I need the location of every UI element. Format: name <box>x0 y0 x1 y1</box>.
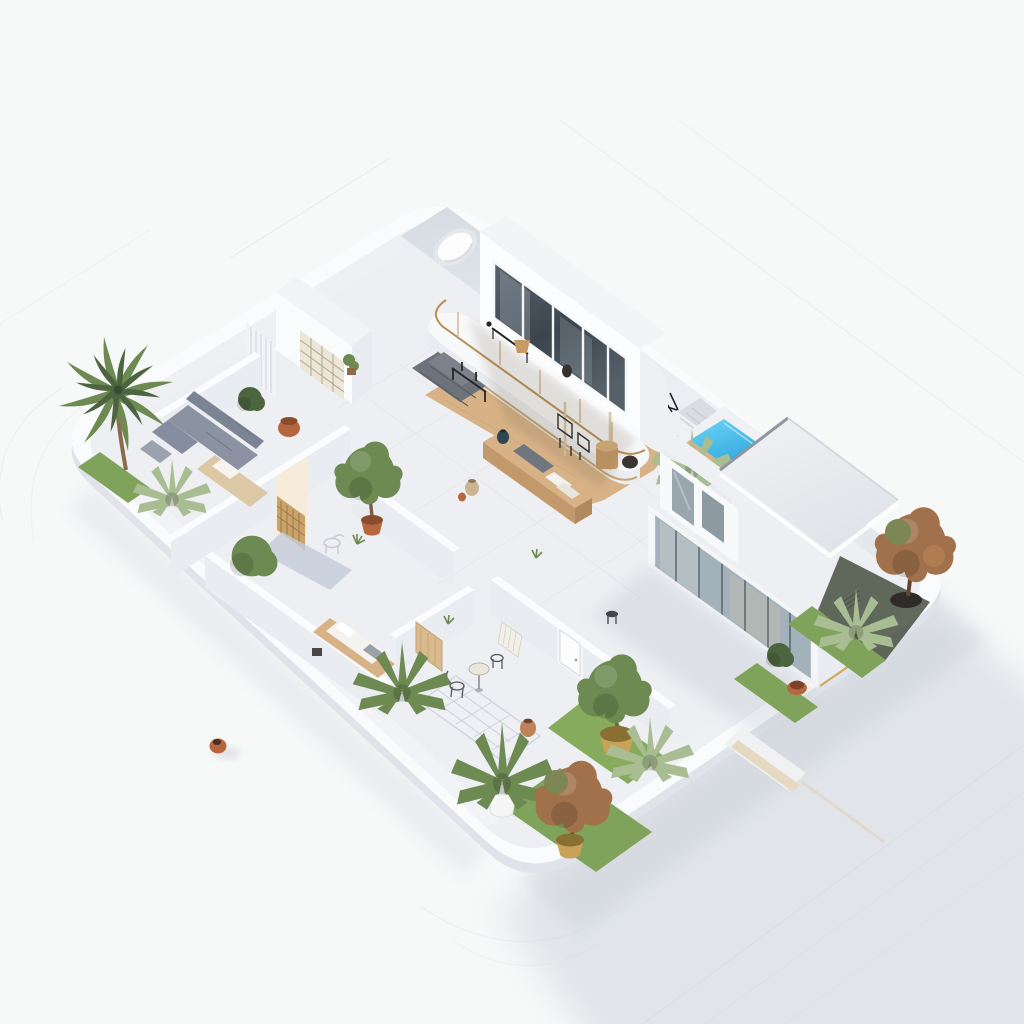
render-canvas <box>0 0 1024 1024</box>
black-bird <box>486 321 491 326</box>
isometric-architecture-render <box>0 0 1024 1024</box>
bedside-object <box>312 648 322 656</box>
dark-pot <box>622 456 638 469</box>
dark-vase <box>562 365 572 378</box>
terracotta-pot-vestibule <box>278 417 300 437</box>
ficus-terracotta-pot <box>361 515 383 536</box>
